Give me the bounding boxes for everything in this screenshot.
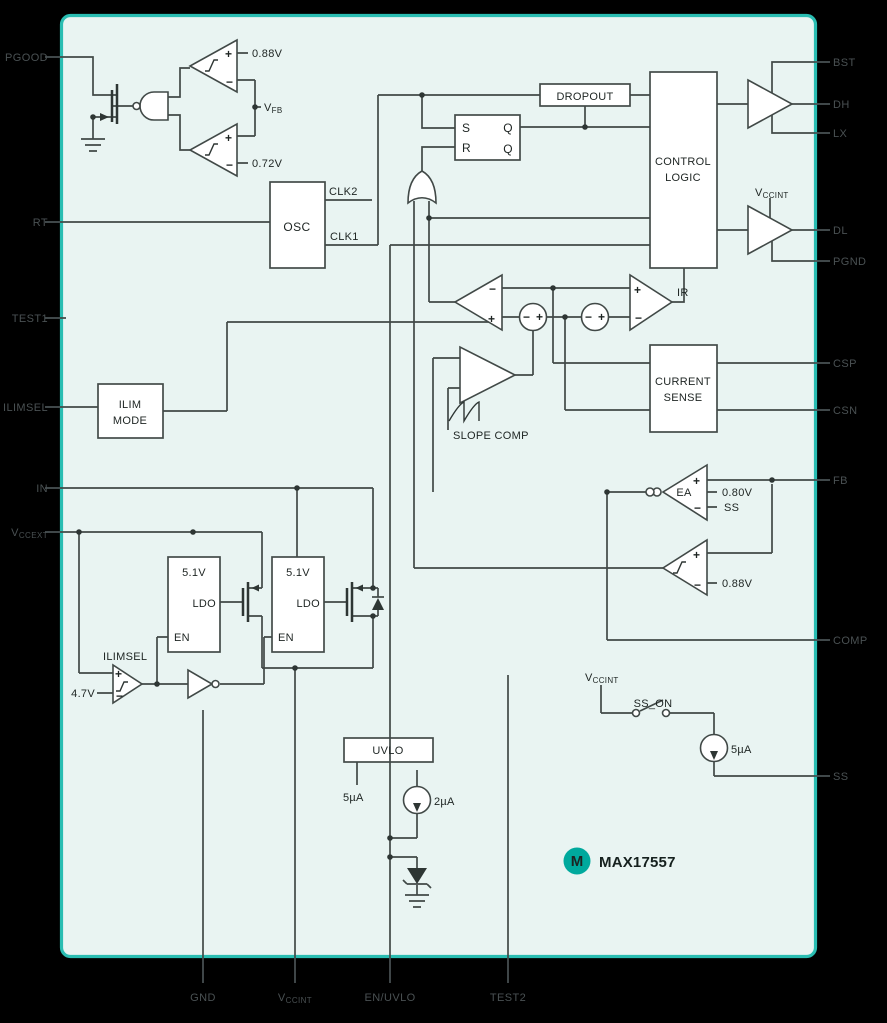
svg-text:+: + [536, 310, 543, 324]
latch-q: Q [503, 121, 513, 135]
ir-label: IR [677, 287, 689, 299]
pin-label-pgood: PGOOD [5, 52, 48, 64]
ilim-mode-block [98, 384, 163, 438]
schematic-canvas: PGOOD RT TEST1 ILIMSEL IN VCCEXT BST DH … [0, 0, 887, 1023]
current-sense-label-1: CURRENT [655, 376, 711, 388]
svg-text:+: + [693, 474, 700, 488]
pin-label-ilimsel: ILIMSEL [3, 402, 48, 414]
ea-ref: 0.80V [722, 487, 753, 499]
svg-text:−: − [226, 75, 233, 89]
slope-comp-label: SLOPE COMP [453, 430, 529, 442]
ldo1-en-label: EN [174, 632, 190, 644]
part-number: MAX17557 [599, 854, 676, 871]
pin-label-in: IN [36, 483, 48, 495]
svg-text:−: − [694, 501, 701, 515]
osc-label: OSC [283, 220, 310, 234]
pin-label-comp: COMP [833, 635, 868, 647]
ea-ss: SS [724, 502, 739, 514]
ilim-mode-label-2: MODE [113, 415, 147, 427]
pin-label-pgnd: PGND [833, 256, 866, 268]
control-logic-block [650, 72, 717, 268]
svg-text:+: + [225, 47, 232, 61]
svg-text:−: − [489, 282, 496, 296]
svg-text:−: − [116, 689, 123, 703]
pin-label-test2: TEST2 [490, 992, 526, 1004]
pin-label-en-uvlo: EN/UVLO [364, 992, 415, 1004]
pin-label-bst: BST [833, 57, 856, 69]
pin-label-lx: LX [833, 128, 848, 140]
latch-s: S [462, 121, 470, 135]
pin-label-gnd: GND [190, 992, 216, 1004]
ilimsel-comparator-label: ILIMSEL [103, 651, 147, 663]
current-sense-block [650, 345, 717, 432]
svg-text:−: − [585, 310, 592, 324]
en-uvlo-current: 2µA [434, 796, 455, 808]
pin-label-test1: TEST1 [12, 313, 48, 325]
pin-label-vccint: VCCINT [278, 992, 312, 1005]
inverter-bubble [212, 681, 219, 688]
control-logic-label-1: CONTROL [655, 156, 711, 168]
ss-switch-contact-left [633, 710, 640, 717]
control-logic-label-2: LOGIC [665, 172, 701, 184]
pin-label-csp: CSP [833, 358, 857, 370]
uvlo-bias-current: 5µA [343, 792, 364, 804]
ldo2-en-label: EN [278, 632, 294, 644]
svg-text:−: − [694, 578, 701, 592]
ea-output-bubble-2 [646, 488, 654, 496]
svg-text:−: − [226, 158, 233, 172]
ss-current: 5µA [731, 744, 752, 756]
clk1-label: CLK1 [330, 231, 359, 243]
clk2-label: CLK2 [329, 186, 358, 198]
latch-qb: Q [503, 142, 513, 156]
pgood-nand-gate [140, 92, 168, 120]
ss-on-label: SS_ON [634, 698, 673, 710]
svg-text:+: + [598, 310, 605, 324]
ldo2-label: LDO [296, 598, 320, 610]
uvlo-label: UVLO [372, 745, 403, 757]
functional-diagram: PGOOD RT TEST1 ILIMSEL IN VCCEXT BST DH … [0, 0, 887, 1023]
ea-label: EA [676, 487, 692, 499]
svg-text:−: − [635, 311, 642, 325]
pin-label-csn: CSN [833, 405, 857, 417]
ss-switch-contact-right [663, 710, 670, 717]
svg-text:+: + [225, 131, 232, 145]
pin-label-fb: FB [833, 475, 848, 487]
svg-text:+: + [634, 283, 641, 297]
svg-text:−: − [523, 310, 530, 324]
pin-label-ss: SS [833, 771, 848, 783]
latch-r: R [462, 141, 471, 155]
nand-inversion-bubble [133, 103, 140, 110]
current-sense-label-2: SENSE [664, 392, 703, 404]
ldo1-voltage: 5.1V [182, 567, 206, 579]
pgood-upper-ref: 0.88V [252, 48, 283, 60]
pin-label-dl: DL [833, 225, 848, 237]
pin-label-vccext: VCCEXT [11, 527, 48, 540]
svg-text:+: + [488, 312, 495, 326]
ldo1-label: LDO [192, 598, 216, 610]
pin-label-dh: DH [833, 99, 850, 111]
pin-label-rt: RT [33, 217, 48, 229]
maxim-logo-mark: M [571, 853, 584, 870]
ilim-mode-label-1: ILIM [119, 399, 142, 411]
svg-text:+: + [693, 548, 700, 562]
ldo2-voltage: 5.1V [286, 567, 310, 579]
ilimsel-ref: 4.7V [71, 688, 95, 700]
svg-text:+: + [115, 667, 122, 681]
ovp-ref: 0.88V [722, 578, 753, 590]
pgood-lower-ref: 0.72V [252, 158, 283, 170]
dropout-label: DROPOUT [556, 91, 613, 103]
